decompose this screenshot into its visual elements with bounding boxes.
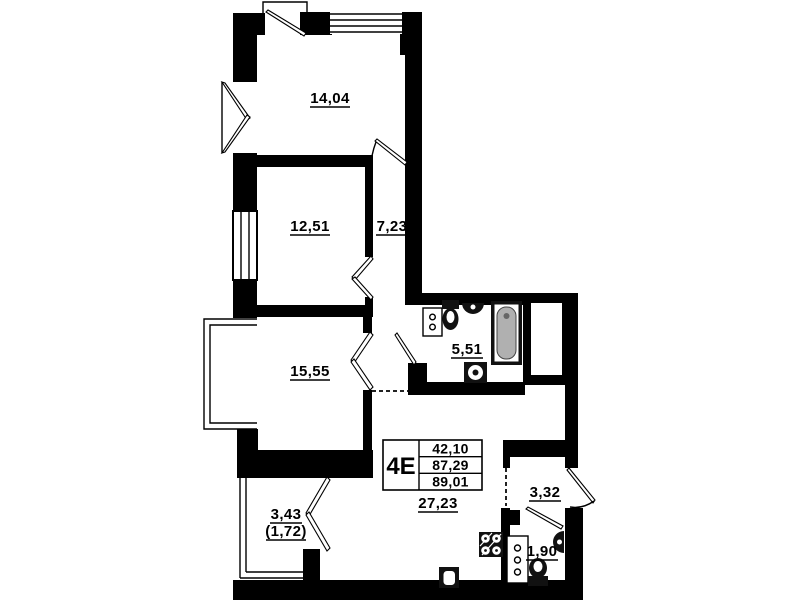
room-label-wc: 1,90 [527,543,558,560]
bathroom-cabinet-icon [423,308,442,336]
wall [233,280,257,318]
unit-type-label: 4E [386,453,415,480]
wall [233,13,257,82]
wall [237,450,373,478]
wall [363,390,372,450]
toilet-icon [442,300,459,330]
door-lower-room [351,332,373,390]
bay-window [204,319,257,429]
room-label-entry-hall: 3,32 [530,484,561,501]
floor-plan: 14,04 12,51 7,23 15,55 5,51 27,23 3,32 1… [0,0,799,600]
wall [565,508,583,600]
room-label-corridor: 7,23 [377,218,408,235]
ventilation-shaft [531,303,562,375]
unit-info-table: 4E 42,10 87,29 89,01 [383,440,482,490]
room-label-kitchen-living: 27,23 [418,495,458,512]
sink-icon [462,303,484,314]
wc-toilet-icon [528,558,548,586]
unit-area-3: 89,01 [432,474,469,490]
wall [257,155,373,167]
kitchen-sink-icon [439,567,459,588]
bathroom-door [395,333,416,365]
wall [408,382,525,395]
balcony-french-door [306,477,330,551]
window-top [330,12,402,34]
window-mid-room [233,211,257,280]
entrance-door [567,468,595,507]
unit-area-2: 87,29 [432,457,469,473]
room-label-balcony: 3,43 [271,506,302,523]
room-label-low: 15,55 [290,363,330,380]
room-label-top: 14,04 [310,90,350,107]
wall [233,153,257,211]
wall [510,510,520,525]
stove-icon [479,532,503,557]
room-label-bathroom: 5,51 [452,341,483,358]
wall [300,12,332,35]
wc-door [526,507,563,529]
wc-cabinet-icon [507,536,528,583]
wall [365,167,373,257]
door-mid-room [352,256,373,300]
window-casement-left [222,82,250,153]
door-upper-room [371,139,407,167]
wall [303,549,320,582]
room-label-mid: 12,51 [290,218,330,235]
wall [503,440,510,468]
unit-area-1: 42,10 [432,441,469,457]
washing-machine-icon [464,362,487,383]
bathtub-icon [491,301,522,365]
wall [363,317,372,333]
wall [257,305,373,317]
wall [505,440,573,457]
wall [405,12,422,295]
room-label-balcony-reduced: (1,72) [265,523,307,540]
floor-plan-canvas: 14,04 12,51 7,23 15,55 5,51 27,23 3,32 1… [0,0,799,600]
